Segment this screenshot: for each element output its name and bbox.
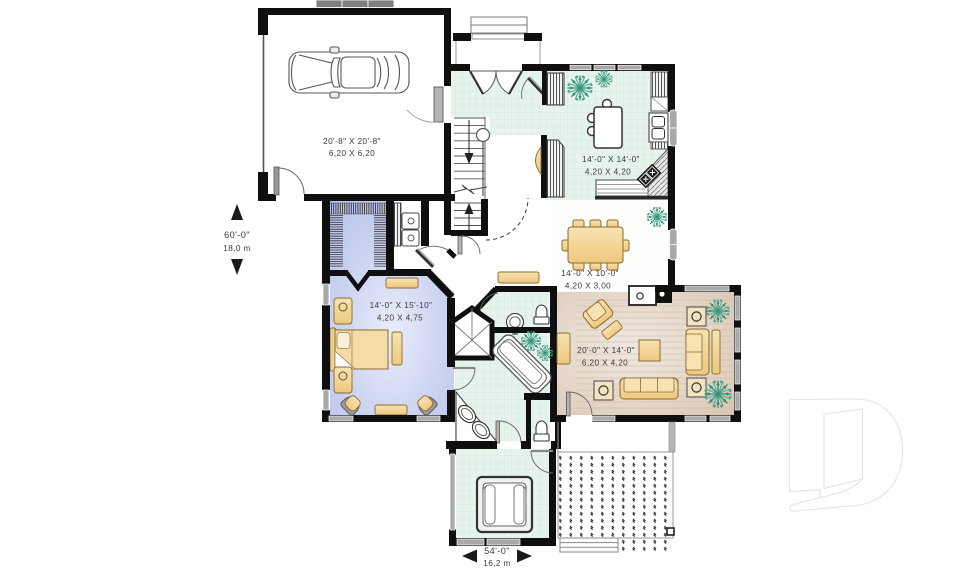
svg-text:16,2 m: 16,2 m	[483, 559, 510, 568]
svg-text:54'-0": 54'-0"	[484, 546, 510, 556]
svg-text:4,20 X 4,20: 4,20 X 4,20	[585, 168, 631, 177]
svg-text:18,0 m: 18,0 m	[223, 244, 250, 253]
svg-text:6,20 X 4,20: 6,20 X 4,20	[582, 359, 628, 368]
svg-text:14'-0" X 10'-0": 14'-0" X 10'-0"	[561, 269, 619, 278]
svg-text:6,20 X 6,20: 6,20 X 6,20	[329, 149, 375, 158]
svg-text:20'-0" X 14'-0": 20'-0" X 14'-0"	[577, 346, 635, 355]
svg-text:14'-0" X 14'-0": 14'-0" X 14'-0"	[582, 155, 640, 164]
svg-text:14'-0" X 15'-10": 14'-0" X 15'-10"	[370, 301, 433, 310]
svg-text:4,20 X 4,75: 4,20 X 4,75	[377, 314, 423, 323]
svg-text:60'-0": 60'-0"	[224, 230, 250, 240]
svg-text:4,20 X 3,00: 4,20 X 3,00	[565, 282, 611, 291]
svg-text:20'-8" X 20'-8": 20'-8" X 20'-8"	[323, 137, 381, 146]
